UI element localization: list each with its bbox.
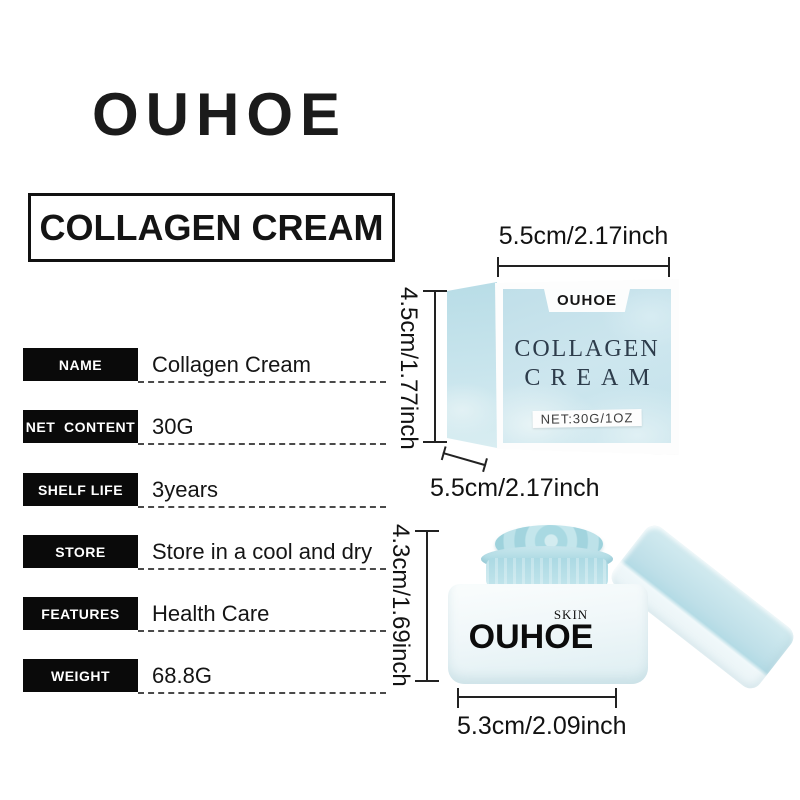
jar-brand-text: OUHOE bbox=[466, 618, 596, 657]
box-width-dimension-line bbox=[497, 265, 670, 267]
jar-body: SKIN OUHOE bbox=[448, 584, 648, 684]
box-title-line1: COLLAGEN bbox=[503, 336, 671, 363]
jar-height-dimension-label: 4.3cm/1.69inch bbox=[386, 524, 414, 688]
row-divider bbox=[138, 506, 386, 508]
box-width-dimension-label: 5.5cm/2.17inch bbox=[497, 222, 670, 251]
box-height-dimension-line bbox=[434, 290, 436, 443]
box-side-panel bbox=[447, 277, 497, 455]
spec-value: 68.8G bbox=[152, 659, 212, 692]
box-depth-dimension-label: 5.5cm/2.17inch bbox=[430, 474, 590, 503]
spec-value: Store in a cool and dry bbox=[152, 535, 372, 568]
box-front-artwork: OUHOE COLLAGEN CREAM NET:30G/1OZ bbox=[503, 289, 671, 443]
product-jar-image: SKIN OUHOE bbox=[448, 520, 648, 685]
spec-label: SHELF LIFE bbox=[23, 473, 138, 506]
jar-width-dimension-line bbox=[457, 696, 617, 698]
row-divider bbox=[138, 381, 386, 383]
spec-row-features: FEATURES Health Care bbox=[23, 597, 386, 630]
jar-height-dimension-line bbox=[426, 530, 428, 682]
spec-value: 3years bbox=[152, 473, 218, 506]
spec-label: NAME bbox=[23, 348, 138, 381]
row-divider bbox=[138, 692, 386, 694]
spec-row-shelf-life: SHELF LIFE 3years bbox=[23, 473, 386, 506]
row-divider bbox=[138, 443, 386, 445]
box-net-weight-label: NET:30G/1OZ bbox=[533, 409, 642, 428]
box-front-panel: OUHOE COLLAGEN CREAM NET:30G/1OZ bbox=[495, 279, 679, 455]
product-box-image: OUHOE COLLAGEN CREAM NET:30G/1OZ bbox=[447, 277, 679, 455]
spec-row-weight: WEIGHT 68.8G bbox=[23, 659, 386, 692]
product-infographic: OUHOE COLLAGEN CREAM NAME Collagen Cream… bbox=[0, 0, 800, 800]
row-divider bbox=[138, 568, 386, 570]
spec-row-net-content: NET CONTENT 30G bbox=[23, 410, 386, 443]
row-divider bbox=[138, 630, 386, 632]
spec-label: FEATURES bbox=[23, 597, 138, 630]
spec-value: 30G bbox=[152, 410, 194, 443]
product-title: COLLAGEN CREAM bbox=[40, 207, 384, 249]
spec-value: Health Care bbox=[152, 597, 269, 630]
product-title-box: COLLAGEN CREAM bbox=[28, 193, 395, 262]
box-brand-tab: OUHOE bbox=[544, 289, 630, 312]
spec-row-name: NAME Collagen Cream bbox=[23, 348, 386, 381]
box-height-dimension-label: 4.5cm/1.77inch bbox=[394, 287, 422, 447]
spec-label: STORE bbox=[23, 535, 138, 568]
box-title-line2: CREAM bbox=[503, 365, 671, 392]
spec-label: NET CONTENT bbox=[23, 410, 138, 443]
spec-label: WEIGHT bbox=[23, 659, 138, 692]
jar-width-dimension-label: 5.3cm/2.09inch bbox=[457, 712, 617, 741]
spec-row-store: STORE Store in a cool and dry bbox=[23, 535, 386, 568]
spec-value: Collagen Cream bbox=[152, 348, 311, 381]
brand-logo: OUHOE bbox=[92, 80, 347, 149]
box-brand-text: OUHOE bbox=[557, 292, 617, 309]
